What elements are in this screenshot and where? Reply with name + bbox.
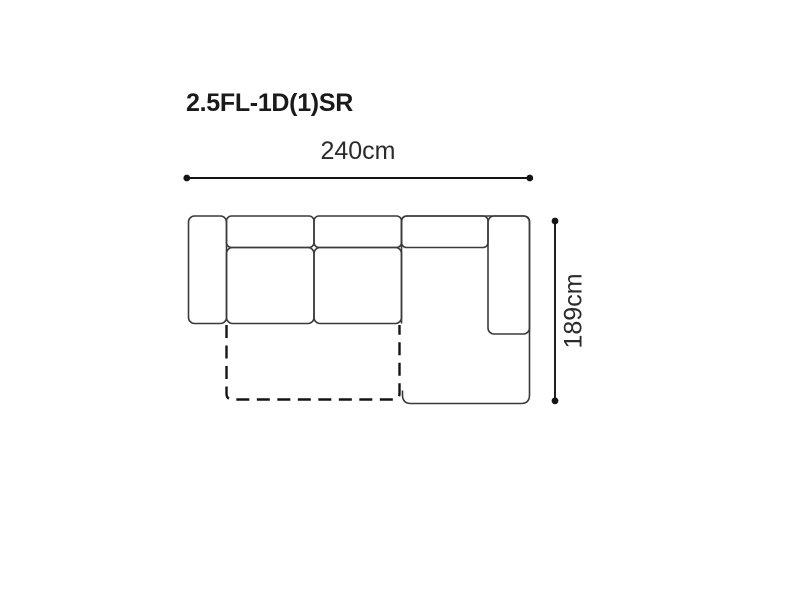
depth-dimension-end-dot: [552, 397, 559, 404]
seat-cushion-2: [314, 248, 402, 324]
width-dimension-end-dot: [526, 175, 533, 182]
depth-dimension-line: [552, 218, 559, 405]
footrest-dashed-outline: [227, 325, 400, 400]
back-cushion-2: [314, 216, 402, 248]
back-cushion-3: [402, 216, 489, 248]
width-dimension-start-dot: [183, 175, 190, 182]
seat-cushion-1: [227, 248, 315, 324]
width-dimension-line: [183, 175, 533, 182]
right-armrest: [488, 216, 530, 334]
sofa-diagram-svg: [0, 0, 800, 600]
sofa-top-view: [189, 216, 530, 404]
product-dimension-diagram: 2.5FL-1D(1)SR 240cm 189cm: [0, 0, 800, 600]
depth-dimension-start-dot: [552, 218, 559, 225]
chaise-section: [402, 216, 530, 404]
back-cushion-1: [227, 216, 315, 248]
left-armrest: [189, 216, 227, 324]
